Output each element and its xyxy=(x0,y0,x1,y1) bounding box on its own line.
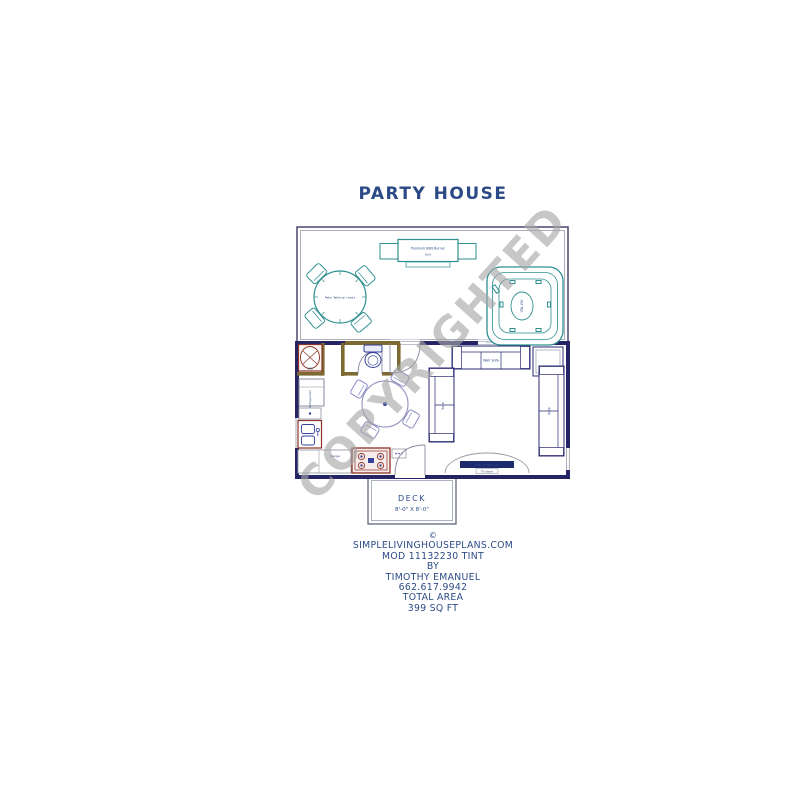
deck: DECK 8'-0" X 8'-0" xyxy=(368,477,456,524)
sofa-top-label: Wall Sofa xyxy=(483,359,499,363)
sofa-right: Sofa xyxy=(539,366,564,456)
total-area-value: 399 SQ FT xyxy=(288,604,578,614)
range-side-label: Range xyxy=(330,454,340,458)
kitchen-sink xyxy=(298,421,322,449)
stove xyxy=(352,448,390,473)
refrigerator: Refrigerator xyxy=(299,379,324,408)
sofa-right-label: Sofa xyxy=(547,407,551,415)
kitchen-counter-lower: Range xyxy=(298,450,351,473)
floor-plan-drawing: DECK 8'-0" X 8'-0" xyxy=(288,222,580,534)
patio-table-label: Patio Table w/ chairs xyxy=(325,296,356,300)
floor-plan-page: PARTY HOUSE DECK 8'-0" X 8'-0" xyxy=(0,0,800,800)
deck-size-label: 8'-0" X 8'-0" xyxy=(395,507,429,513)
sofa-top: Wall Sofa xyxy=(452,346,530,369)
grill-label: Premium BBQ Burner xyxy=(411,247,446,251)
refrigerator-label: Refrigerator xyxy=(308,389,312,408)
tv-label: Flat Screen TV xyxy=(475,463,499,467)
entry-door-opening xyxy=(395,472,425,478)
washer-label: W/D xyxy=(307,367,314,371)
deck-label: DECK xyxy=(398,494,426,503)
page-title: PARTY HOUSE xyxy=(288,184,578,204)
tv-stand-label: TV stand xyxy=(480,470,494,474)
plan-info-block: © SIMPLELIVINGHOUSEPLANS.COM MOD 1113223… xyxy=(288,531,578,614)
living-window xyxy=(565,448,571,470)
grill-sub-label: Grill xyxy=(425,253,431,257)
hot-tub-label: Hot Tub xyxy=(520,300,524,313)
sofa-left-label: Sofa xyxy=(441,402,445,410)
patio-table: Patio Table w/ chairs xyxy=(304,263,376,333)
sofa-left: Sofa xyxy=(429,368,454,442)
hot-tub: Hot Tub xyxy=(487,267,563,345)
kitchen-counter-upper xyxy=(299,408,321,419)
washer: W/D xyxy=(299,345,323,372)
toilet xyxy=(364,345,382,368)
